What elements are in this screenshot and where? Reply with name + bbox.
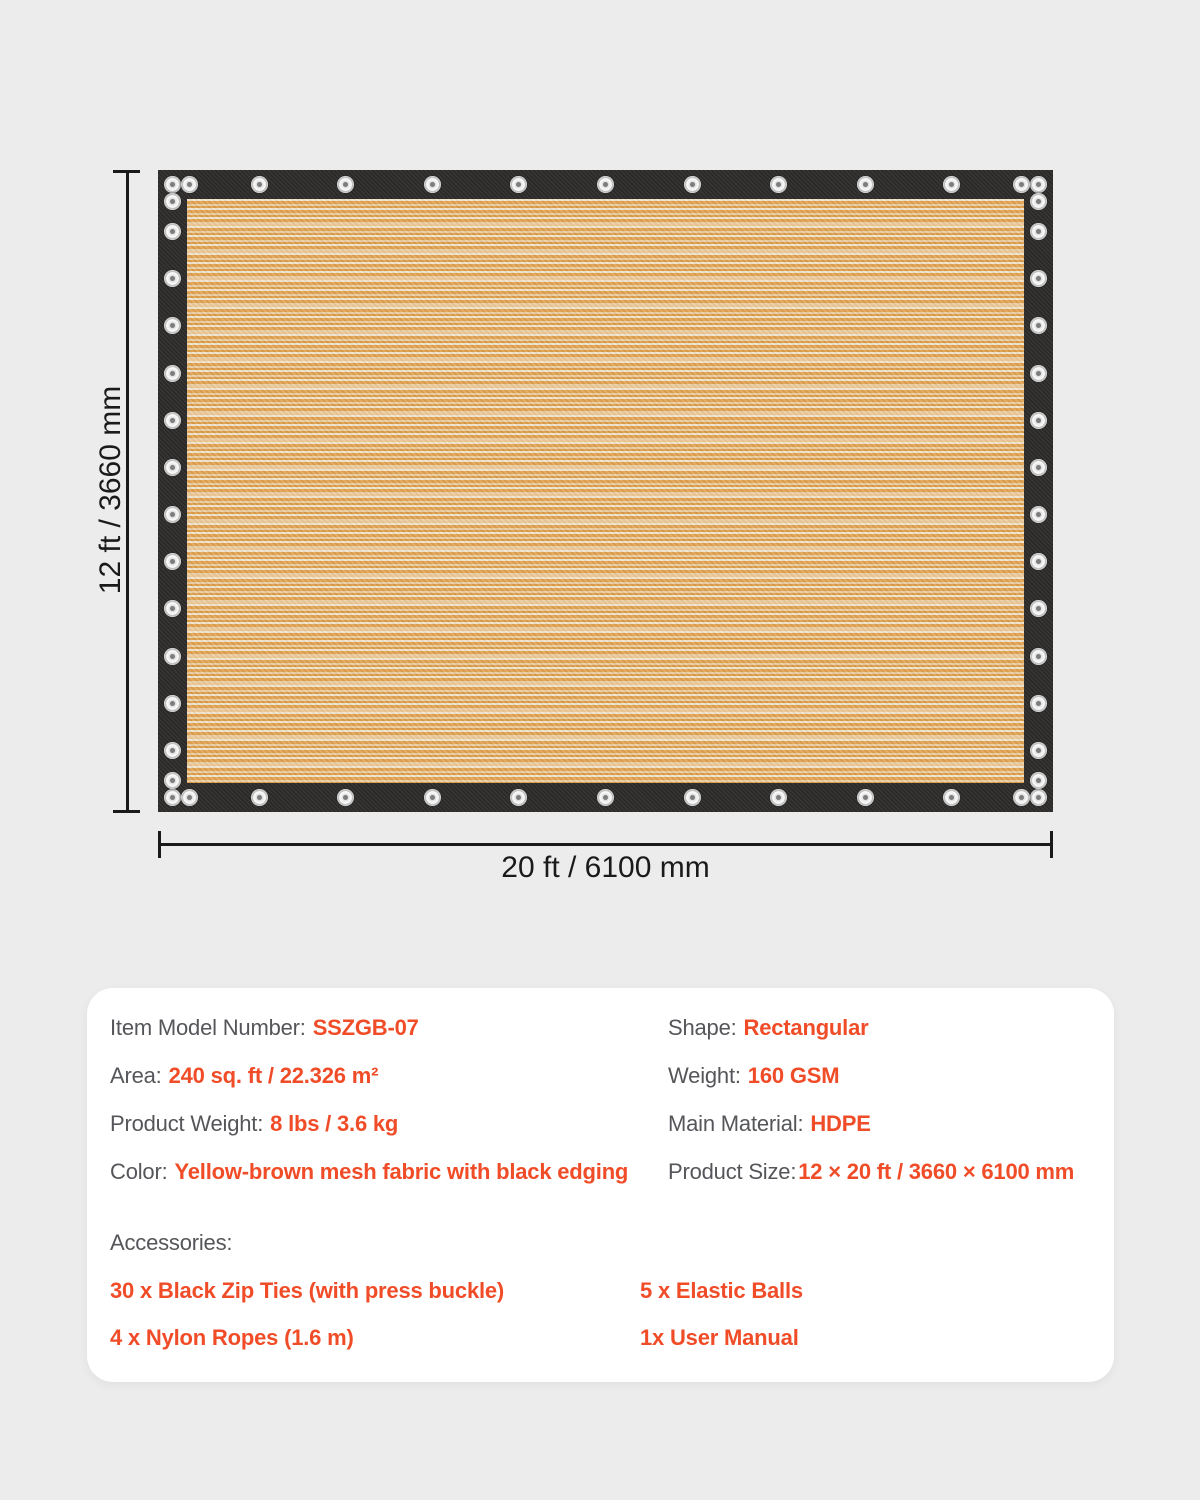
grommet-icon — [164, 789, 181, 806]
grommet-icon — [164, 365, 181, 382]
grommet-icon — [1030, 648, 1047, 665]
height-dimension-tick-top — [113, 170, 140, 173]
grommet-icon — [1030, 223, 1047, 240]
grommet-icon — [424, 176, 441, 193]
grommet-icon — [1013, 789, 1030, 806]
grommet-icon — [164, 317, 181, 334]
grommet-icon — [510, 176, 527, 193]
grommet-icon — [1013, 176, 1030, 193]
spec-label: Weight: — [668, 1063, 741, 1089]
spec-column-right: Shape: Rectangular Weight: 160 GSM Main … — [668, 1004, 1098, 1196]
grommet-icon — [1030, 412, 1047, 429]
mesh-fabric-texture — [187, 199, 1024, 783]
height-dimension-label: 12 ft / 3660 mm — [96, 386, 126, 594]
grommet-icon — [943, 176, 960, 193]
spec-card: Item Model Number: SSZGB-07 Area: 240 sq… — [87, 988, 1114, 1382]
grommet-icon — [1030, 695, 1047, 712]
spec-label: Main Material: — [668, 1111, 803, 1137]
grommet-icon — [770, 789, 787, 806]
width-dimension-line — [158, 843, 1053, 846]
grommet-icon — [1030, 193, 1047, 210]
grommet-icon — [1030, 176, 1047, 193]
spec-value: 240 sq. ft / 22.326 m² — [169, 1063, 379, 1089]
grommet-icon — [1030, 772, 1047, 789]
grommet-icon — [164, 223, 181, 240]
grommet-icon — [1030, 600, 1047, 617]
product-infographic: 12 ft / 3660 mm 20 ft / 6100 mm Item Mod… — [0, 0, 1200, 1500]
grommet-icon — [164, 506, 181, 523]
spec-value: 12 × 20 ft / 3660 × 6100 mm — [798, 1159, 1074, 1185]
grommet-icon — [164, 270, 181, 287]
grommet-icon — [251, 789, 268, 806]
grommet-icon — [164, 695, 181, 712]
grommet-icon — [164, 412, 181, 429]
grommet-icon — [1030, 270, 1047, 287]
grommet-icon — [164, 600, 181, 617]
spec-label: Shape: — [668, 1015, 737, 1041]
grommet-icon — [1030, 789, 1047, 806]
spec-row-model-number: Item Model Number: SSZGB-07 — [110, 1004, 667, 1052]
spec-column-left: Item Model Number: SSZGB-07 Area: 240 sq… — [110, 1004, 667, 1196]
grommet-icon — [1030, 317, 1047, 334]
spec-row-gsm-weight: Weight: 160 GSM — [668, 1052, 1098, 1100]
grommet-icon — [164, 459, 181, 476]
accessory-item-nylon-ropes: 4 x Nylon Ropes (1.6 m) — [110, 1325, 640, 1351]
spec-value: Yellow-brown mesh fabric with black edgi… — [175, 1159, 629, 1185]
spec-row-product-weight: Product Weight: 8 lbs / 3.6 kg — [110, 1100, 667, 1148]
grommet-icon — [424, 789, 441, 806]
grommet-icon — [164, 553, 181, 570]
grommet-icon — [1030, 742, 1047, 759]
spec-label: Color: — [110, 1159, 168, 1185]
grommet-icon — [857, 176, 874, 193]
grommet-icon — [857, 789, 874, 806]
spec-value: SSZGB-07 — [313, 1015, 419, 1041]
grommet-icon — [510, 789, 527, 806]
grommet-icon — [337, 789, 354, 806]
grommet-icon — [181, 176, 198, 193]
grommet-icon — [164, 772, 181, 789]
grommet-icon — [1030, 459, 1047, 476]
grommet-icon — [684, 176, 701, 193]
spec-label: Area: — [110, 1063, 162, 1089]
spec-row-color: Color: Yellow-brown mesh fabric with bla… — [110, 1148, 667, 1196]
spec-value: HDPE — [810, 1111, 870, 1137]
grommet-icon — [181, 789, 198, 806]
accessory-item-user-manual: 1x User Manual — [640, 1325, 803, 1351]
width-dimension-label: 20 ft / 6100 mm — [158, 851, 1053, 884]
grommet-icon — [943, 789, 960, 806]
shade-cloth-image — [158, 170, 1053, 812]
grommet-icon — [337, 176, 354, 193]
grommet-icon — [597, 789, 614, 806]
grommet-icon — [597, 176, 614, 193]
spec-row-material: Main Material: HDPE — [668, 1100, 1098, 1148]
grommet-icon — [1030, 553, 1047, 570]
accessories-list: 30 x Black Zip Ties (with press buckle) … — [110, 1267, 803, 1361]
grommet-icon — [164, 176, 181, 193]
grommet-icon — [164, 648, 181, 665]
spec-row-shape: Shape: Rectangular — [668, 1004, 1098, 1052]
grommet-icon — [1030, 365, 1047, 382]
spec-value: Rectangular — [744, 1015, 869, 1041]
height-dimension-tick-bottom — [113, 810, 140, 813]
accessory-item-elastic-balls: 5 x Elastic Balls — [640, 1278, 803, 1304]
grommet-icon — [770, 176, 787, 193]
spec-label: Product Weight: — [110, 1111, 263, 1137]
grommet-icon — [684, 789, 701, 806]
spec-row-area: Area: 240 sq. ft / 22.326 m² — [110, 1052, 667, 1100]
spec-value: 160 GSM — [748, 1063, 840, 1089]
grommet-icon — [1030, 506, 1047, 523]
grommet-icon — [164, 742, 181, 759]
accessories-heading: Accessories: — [110, 1219, 232, 1267]
accessory-item-zip-ties: 30 x Black Zip Ties (with press buckle) — [110, 1278, 640, 1304]
spec-value: 8 lbs / 3.6 kg — [270, 1111, 398, 1137]
grommet-icon — [251, 176, 268, 193]
spec-row-product-size: Product Size: 12 × 20 ft / 3660 × 6100 m… — [668, 1148, 1098, 1196]
grommet-icon — [164, 193, 181, 210]
spec-label: Item Model Number: — [110, 1015, 306, 1041]
spec-label: Product Size: — [668, 1159, 796, 1185]
